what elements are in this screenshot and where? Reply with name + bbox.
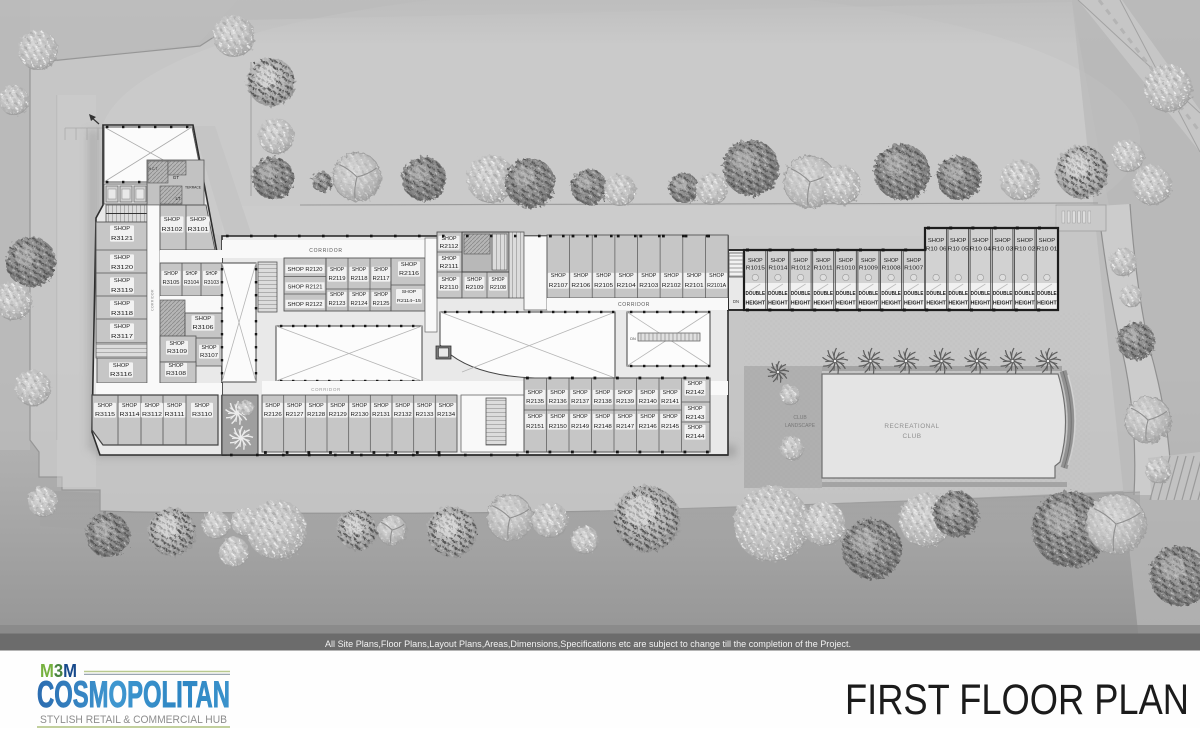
svg-text:SHOP: SHOP	[663, 414, 679, 420]
svg-text:R3110: R3110	[192, 412, 212, 418]
svg-text:SHOP: SHOP	[641, 273, 657, 279]
svg-text:R2139: R2139	[616, 399, 634, 405]
svg-text:R3112: R3112	[142, 412, 162, 418]
svg-text:SHOP: SHOP	[771, 258, 786, 264]
svg-text:SHOP: SHOP	[596, 273, 612, 279]
svg-text:DOUBLE: DOUBLE	[881, 291, 901, 297]
svg-text:R2141: R2141	[661, 399, 679, 405]
svg-text:SHOP: SHOP	[265, 403, 281, 409]
svg-text:GT: GT	[173, 175, 180, 180]
svg-text:R10 05: R10 05	[948, 247, 969, 253]
svg-text:R10 02: R10 02	[1014, 247, 1035, 253]
svg-text:CORRIDOR: CORRIDOR	[151, 289, 155, 311]
svg-text:SHOP: SHOP	[114, 278, 131, 284]
svg-text:DOUBLE: DOUBLE	[836, 291, 856, 297]
svg-text:HEIGHT: HEIGHT	[881, 301, 901, 307]
svg-text:R2142: R2142	[686, 390, 705, 396]
svg-text:R2140: R2140	[639, 399, 657, 405]
svg-text:SHOP: SHOP	[98, 403, 114, 409]
svg-text:SHOP: SHOP	[374, 403, 390, 409]
svg-text:R1011: R1011	[814, 266, 833, 272]
svg-text:DOUBLE: DOUBLE	[813, 291, 833, 297]
svg-text:R1010: R1010	[836, 266, 855, 272]
svg-text:SHOP: SHOP	[928, 238, 945, 244]
svg-text:R10 01: R10 01	[1036, 247, 1057, 253]
svg-text:R2148: R2148	[594, 424, 612, 430]
svg-text:SHOP: SHOP	[439, 403, 455, 409]
svg-text:COSMOPOLITAN: COSMOPOLITAN	[37, 673, 230, 715]
svg-text:R2109: R2109	[466, 285, 484, 291]
svg-text:HEIGHT: HEIGHT	[1037, 301, 1057, 307]
svg-text:SHOP: SHOP	[595, 414, 611, 420]
svg-text:SHOP: SHOP	[352, 267, 367, 273]
svg-text:R3108: R3108	[166, 371, 186, 377]
svg-text:SHOP: SHOP	[330, 403, 346, 409]
svg-text:R2107: R2107	[549, 283, 568, 289]
svg-text:DOUBLE: DOUBLE	[746, 291, 766, 297]
svg-text:CORRIDOR: CORRIDOR	[311, 387, 341, 392]
svg-text:SHOP: SHOP	[114, 255, 131, 261]
svg-text:SHOP: SHOP	[374, 292, 389, 298]
svg-text:SHOP: SHOP	[352, 292, 367, 298]
svg-text:SHOP: SHOP	[748, 258, 763, 264]
svg-text:SHOP: SHOP	[595, 390, 611, 396]
svg-text:R3105: R3105	[163, 280, 180, 286]
svg-text:R3116: R3116	[110, 372, 132, 378]
svg-text:R2151: R2151	[526, 424, 544, 430]
svg-text:SHOP: SHOP	[190, 217, 207, 223]
svg-text:SHOP: SHOP	[838, 258, 853, 264]
svg-text:SHOP: SHOP	[573, 390, 589, 396]
svg-text:SHOP: SHOP	[688, 425, 704, 431]
svg-text:R2125: R2125	[373, 301, 390, 307]
svg-text:R2126: R2126	[264, 412, 282, 418]
svg-text:R2106: R2106	[571, 283, 590, 289]
svg-text:R2123: R2123	[329, 301, 346, 307]
svg-text:SHOP: SHOP	[202, 345, 218, 351]
svg-text:SHOP: SHOP	[402, 289, 416, 295]
svg-text:HEIGHT: HEIGHT	[904, 301, 924, 307]
svg-text:SHOP: SHOP	[550, 390, 566, 396]
svg-text:R2111: R2111	[440, 264, 459, 270]
svg-text:HEIGHT: HEIGHT	[768, 301, 788, 307]
svg-text:R2132: R2132	[394, 412, 412, 418]
svg-text:R2135: R2135	[526, 399, 544, 405]
svg-text:SHOP: SHOP	[401, 262, 418, 268]
svg-text:SHOP: SHOP	[793, 258, 808, 264]
svg-text:R2108: R2108	[490, 285, 506, 291]
svg-text:R2127: R2127	[286, 412, 304, 418]
svg-text:R2136: R2136	[549, 399, 567, 405]
svg-text:SHOP: SHOP	[664, 273, 680, 279]
svg-text:R2103: R2103	[639, 283, 658, 289]
svg-text:DOUBLE: DOUBLE	[1015, 291, 1035, 297]
svg-text:R10 06: R10 06	[926, 247, 947, 253]
svg-text:R3111: R3111	[165, 412, 185, 418]
svg-text:R10 04: R10 04	[970, 247, 992, 253]
svg-text:TERRACE: TERRACE	[185, 186, 202, 190]
svg-text:R2117: R2117	[373, 276, 390, 282]
svg-text:SHOP: SHOP	[309, 403, 325, 409]
svg-text:CLUB: CLUB	[902, 433, 921, 440]
svg-text:R2104: R2104	[617, 283, 636, 289]
svg-text:R1009: R1009	[859, 266, 878, 272]
svg-text:R2133: R2133	[416, 412, 434, 418]
svg-text:SHOP: SHOP	[816, 258, 831, 264]
svg-text:SHOP R2120: SHOP R2120	[288, 267, 323, 273]
svg-text:DOUBLE: DOUBLE	[859, 291, 879, 297]
svg-text:SHOP: SHOP	[861, 258, 876, 264]
svg-text:R2114–15: R2114–15	[397, 298, 421, 304]
svg-text:SHOP: SHOP	[663, 390, 679, 396]
svg-text:R1007: R1007	[904, 266, 923, 272]
svg-text:SHOP: SHOP	[573, 414, 589, 420]
svg-text:R2101: R2101	[685, 283, 704, 289]
svg-text:DOUBLE: DOUBLE	[768, 291, 788, 297]
svg-text:R2145: R2145	[661, 424, 679, 430]
svg-text:SHOP: SHOP	[164, 217, 181, 223]
svg-text:SHOP: SHOP	[884, 258, 899, 264]
svg-text:R3109: R3109	[167, 349, 187, 355]
svg-text:R2138: R2138	[594, 399, 612, 405]
svg-text:SHOP: SHOP	[352, 403, 368, 409]
svg-text:SHOP: SHOP	[114, 301, 131, 307]
svg-text:R3103: R3103	[204, 280, 219, 286]
svg-text:R2137: R2137	[571, 399, 589, 405]
svg-text:DOUBLE: DOUBLE	[948, 291, 968, 297]
svg-text:SHOP: SHOP	[442, 277, 458, 283]
svg-text:R2130: R2130	[351, 412, 369, 418]
svg-text:HEIGHT: HEIGHT	[836, 301, 856, 307]
svg-text:HEIGHT: HEIGHT	[993, 301, 1013, 307]
svg-text:SHOP: SHOP	[374, 267, 389, 273]
svg-text:SHOP: SHOP	[395, 403, 411, 409]
svg-text:DOUBLE: DOUBLE	[993, 291, 1013, 297]
svg-text:SHOP: SHOP	[164, 271, 179, 277]
svg-text:R3121: R3121	[111, 236, 133, 242]
svg-text:SHOP: SHOP	[688, 381, 704, 387]
svg-text:STYLISH RETAIL & COMMERCIAL HU: STYLISH RETAIL & COMMERCIAL HUB	[40, 714, 227, 726]
svg-text:DOUBLE: DOUBLE	[904, 291, 924, 297]
svg-text:HEIGHT: HEIGHT	[926, 301, 946, 307]
svg-text:SHOP: SHOP	[170, 341, 186, 347]
svg-text:SHOP: SHOP	[492, 277, 506, 283]
svg-text:HEIGHT: HEIGHT	[791, 301, 811, 307]
svg-text:R3106: R3106	[193, 325, 214, 331]
svg-text:SHOP: SHOP	[467, 277, 483, 283]
svg-text:SHOP: SHOP	[618, 414, 634, 420]
svg-text:R1014: R1014	[768, 266, 787, 272]
svg-text:SHOP: SHOP	[687, 273, 703, 279]
svg-text:DN: DN	[630, 337, 636, 341]
svg-text:R3107: R3107	[200, 353, 218, 359]
svg-text:R3101: R3101	[188, 227, 209, 233]
svg-text:R2131: R2131	[372, 412, 390, 418]
svg-text:R3114: R3114	[120, 412, 140, 418]
svg-text:CLUB: CLUB	[793, 415, 807, 421]
svg-text:R1012: R1012	[791, 266, 810, 272]
svg-text:R2105: R2105	[594, 283, 613, 289]
svg-text:R2150: R2150	[549, 424, 567, 430]
svg-text:SHOP: SHOP	[528, 414, 544, 420]
svg-text:HEIGHT: HEIGHT	[971, 301, 991, 307]
svg-text:SHOP: SHOP	[169, 363, 185, 369]
svg-text:HEIGHT: HEIGHT	[948, 301, 968, 307]
svg-text:RECREATIONAL: RECREATIONAL	[884, 423, 939, 430]
svg-text:R2110: R2110	[440, 285, 459, 291]
svg-text:H.C.T: H.C.T	[149, 167, 158, 171]
svg-text:R1008: R1008	[882, 266, 901, 272]
svg-text:SHOP: SHOP	[167, 403, 183, 409]
svg-text:DOUBLE: DOUBLE	[1037, 291, 1057, 297]
svg-text:All Site Plans,Floor Plans,Lay: All Site Plans,Floor Plans,Layout Plans,…	[325, 639, 851, 650]
svg-text:SHOP: SHOP	[114, 226, 131, 232]
svg-text:SHOP: SHOP	[195, 403, 211, 409]
svg-text:R2101A: R2101A	[707, 283, 727, 289]
svg-text:HEIGHT: HEIGHT	[859, 301, 879, 307]
svg-text:R10 03: R10 03	[992, 247, 1013, 253]
svg-text:R2146: R2146	[639, 424, 657, 430]
svg-text:HEIGHT: HEIGHT	[813, 301, 833, 307]
svg-text:DN: DN	[733, 299, 739, 304]
svg-text:SHOP: SHOP	[550, 414, 566, 420]
svg-text:R3120: R3120	[111, 265, 133, 271]
svg-text:R2102: R2102	[662, 283, 681, 289]
svg-text:SHOP: SHOP	[528, 390, 544, 396]
svg-text:R3104: R3104	[184, 280, 199, 286]
svg-text:CORRIDOR: CORRIDOR	[618, 302, 650, 308]
svg-text:SHOP: SHOP	[640, 414, 656, 420]
svg-text:SHOP: SHOP	[1039, 238, 1056, 244]
svg-text:SHOP: SHOP	[113, 363, 130, 369]
svg-text:SHOP: SHOP	[688, 406, 704, 412]
svg-text:R2128: R2128	[307, 412, 325, 418]
svg-text:SHOP: SHOP	[551, 273, 567, 279]
svg-text:SHOP: SHOP	[287, 403, 303, 409]
svg-text:SHOP: SHOP	[950, 238, 967, 244]
svg-text:R2116: R2116	[399, 271, 419, 277]
svg-text:R3102: R3102	[162, 227, 183, 233]
svg-text:SHOP: SHOP	[330, 267, 345, 273]
svg-text:R2129: R2129	[329, 412, 347, 418]
svg-text:HEIGHT: HEIGHT	[746, 301, 766, 307]
svg-text:SHOP R2122: SHOP R2122	[288, 302, 323, 308]
svg-text:R3118: R3118	[111, 311, 133, 317]
svg-text:SHOP: SHOP	[618, 390, 634, 396]
svg-text:R3117: R3117	[111, 334, 133, 340]
svg-text:SHOP: SHOP	[972, 238, 989, 244]
svg-text:SHOP: SHOP	[994, 238, 1011, 244]
svg-text:R2119: R2119	[329, 276, 346, 282]
svg-text:SHOP: SHOP	[195, 316, 212, 322]
svg-text:R3119: R3119	[111, 288, 133, 294]
svg-text:LANDSCAPE: LANDSCAPE	[785, 423, 816, 429]
svg-text:SHOP: SHOP	[122, 403, 138, 409]
svg-text:SHOP: SHOP	[330, 292, 345, 298]
svg-text:R2112: R2112	[440, 244, 459, 250]
svg-text:R1015: R1015	[746, 266, 765, 272]
svg-text:SHOP: SHOP	[573, 273, 589, 279]
svg-text:SHOP: SHOP	[619, 273, 635, 279]
svg-text:DOUBLE: DOUBLE	[971, 291, 991, 297]
svg-text:R2147: R2147	[616, 424, 634, 430]
svg-text:SHOP: SHOP	[709, 273, 725, 279]
svg-text:SHOP: SHOP	[640, 390, 656, 396]
svg-text:CORRIDOR: CORRIDOR	[309, 248, 343, 254]
svg-text:SHOP: SHOP	[417, 403, 433, 409]
svg-text:R2149: R2149	[571, 424, 589, 430]
svg-text:R2144: R2144	[686, 434, 705, 440]
svg-text:SHOP: SHOP	[145, 403, 161, 409]
svg-text:SHOP: SHOP	[186, 271, 199, 277]
svg-text:SHOP R2121: SHOP R2121	[288, 285, 323, 291]
svg-text:SHOP: SHOP	[206, 271, 219, 277]
svg-text:R3115: R3115	[95, 412, 115, 418]
svg-text:SHOP: SHOP	[906, 258, 921, 264]
svg-text:R2124: R2124	[351, 301, 368, 307]
svg-text:DOUBLE: DOUBLE	[926, 291, 946, 297]
svg-text:R2134: R2134	[437, 412, 455, 418]
svg-text:SHOP: SHOP	[1017, 238, 1034, 244]
svg-text:LT: LT	[175, 196, 180, 201]
svg-text:SHOP: SHOP	[114, 324, 131, 330]
svg-text:HEIGHT: HEIGHT	[1015, 301, 1035, 307]
svg-text:R2143: R2143	[686, 415, 705, 421]
svg-text:R2118: R2118	[351, 276, 368, 282]
svg-text:DOUBLE: DOUBLE	[791, 291, 811, 297]
svg-text:SHOP: SHOP	[442, 256, 458, 262]
svg-text:FIRST FLOOR PLAN: FIRST FLOOR PLAN	[845, 677, 1189, 724]
